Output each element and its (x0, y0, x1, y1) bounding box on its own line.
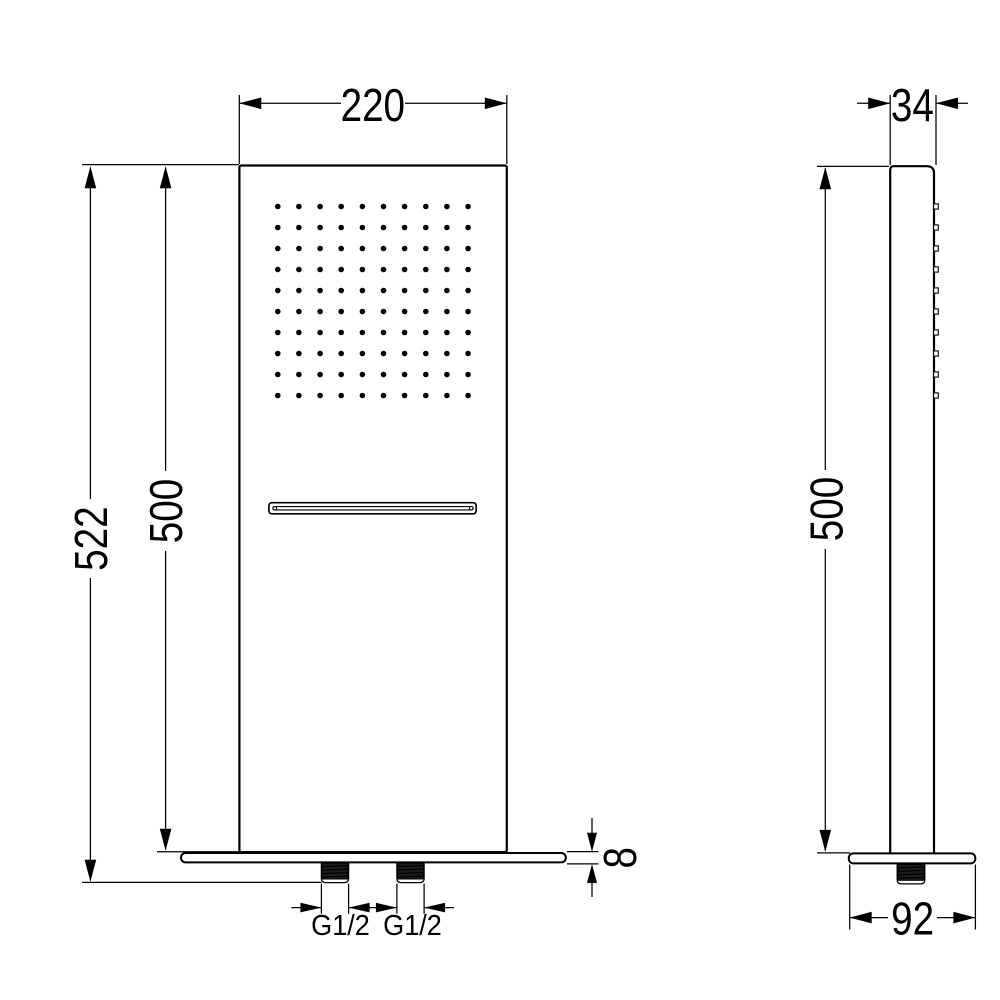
svg-text:G1/2: G1/2 (311, 909, 370, 941)
svg-text:92: 92 (891, 893, 934, 944)
svg-text:500: 500 (801, 477, 852, 541)
svg-text:G1/2: G1/2 (383, 909, 442, 941)
svg-text:522: 522 (66, 506, 117, 570)
svg-text:500: 500 (141, 479, 192, 543)
svg-text:220: 220 (341, 80, 405, 131)
svg-text:8: 8 (595, 847, 646, 868)
svg-text:34: 34 (891, 80, 934, 131)
